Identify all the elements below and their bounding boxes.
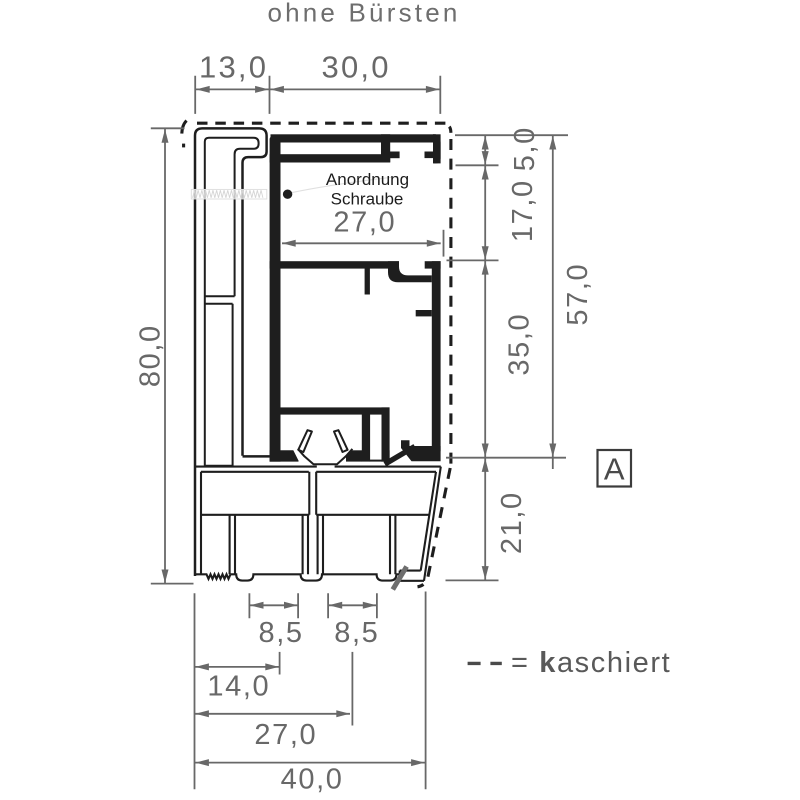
svg-text:8,5: 8,5 <box>259 617 304 649</box>
svg-text:A: A <box>604 452 625 487</box>
svg-text:8,5: 8,5 <box>334 617 379 649</box>
svg-text:21,0: 21,0 <box>496 491 528 554</box>
svg-text:ohne Bürsten: ohne Bürsten <box>267 0 460 28</box>
svg-text:Anordnung: Anordnung <box>326 170 409 189</box>
svg-text:40,0: 40,0 <box>281 764 344 796</box>
svg-text:80,0: 80,0 <box>135 324 167 387</box>
svg-text:17,0: 17,0 <box>507 179 539 242</box>
svg-text:35,0: 35,0 <box>504 313 536 376</box>
svg-text:27,0: 27,0 <box>254 719 317 751</box>
svg-text:57,0: 57,0 <box>562 263 594 326</box>
svg-text:14,0: 14,0 <box>207 671 270 703</box>
svg-text:27,0: 27,0 <box>333 207 396 239</box>
svg-text:= kaschiert: = kaschiert <box>511 647 671 679</box>
svg-text:30,0: 30,0 <box>322 50 391 85</box>
svg-text:5,0: 5,0 <box>509 126 541 171</box>
svg-text:13,0: 13,0 <box>199 50 268 85</box>
